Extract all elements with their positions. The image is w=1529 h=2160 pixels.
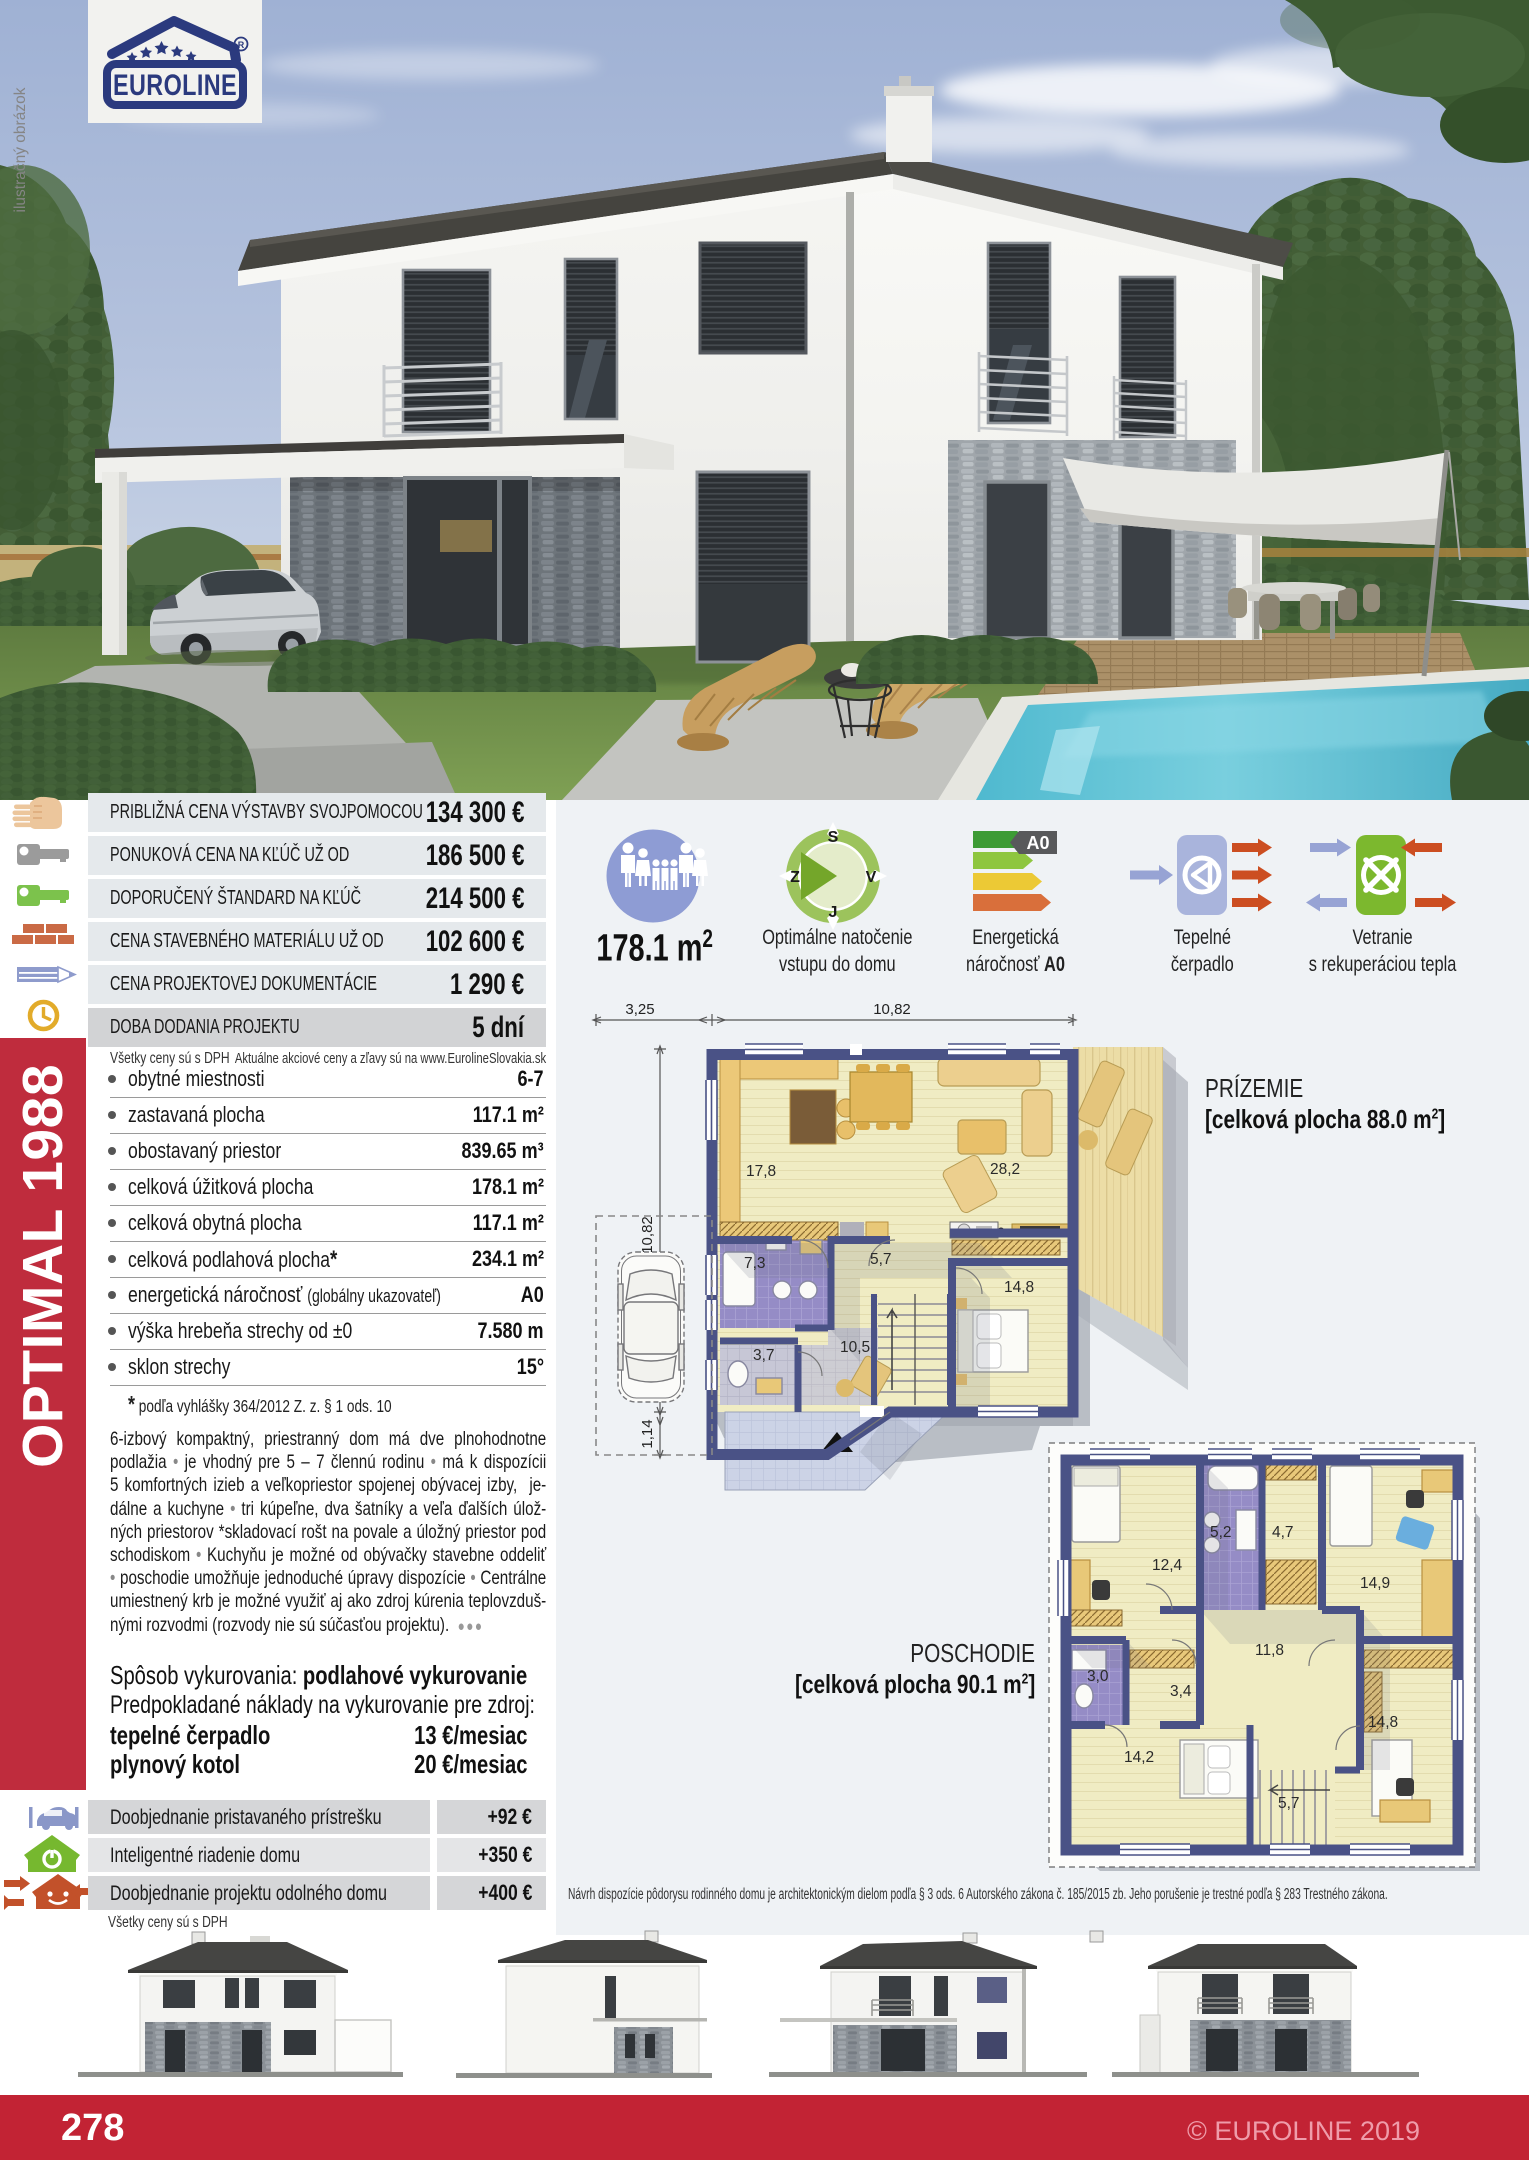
svg-text:J: J xyxy=(829,904,838,921)
svg-text:5,2: 5,2 xyxy=(1210,1524,1232,1541)
svg-text:10,5: 10,5 xyxy=(840,1339,870,1356)
svg-text:14,8: 14,8 xyxy=(1004,1279,1034,1296)
svg-text:3,4: 3,4 xyxy=(1170,1683,1192,1700)
svg-text:14,2: 14,2 xyxy=(1124,1749,1154,1766)
svg-text:V: V xyxy=(866,869,877,886)
svg-text:1,14: 1,14 xyxy=(639,1419,656,1448)
svg-text:4,7: 4,7 xyxy=(1272,1524,1294,1541)
svg-text:10,82: 10,82 xyxy=(873,1001,911,1018)
svg-text:R: R xyxy=(238,40,245,50)
svg-text:10,82: 10,82 xyxy=(639,1216,656,1254)
svg-text:11,8: 11,8 xyxy=(1255,1642,1284,1659)
svg-text:3,25: 3,25 xyxy=(625,1001,654,1018)
svg-text:5,7: 5,7 xyxy=(870,1251,892,1268)
svg-text:7,3: 7,3 xyxy=(744,1255,766,1272)
svg-text:S: S xyxy=(828,829,839,846)
svg-text:A0: A0 xyxy=(1026,833,1049,853)
svg-text:Z: Z xyxy=(790,869,800,886)
svg-text:17,8: 17,8 xyxy=(746,1163,776,1180)
svg-text:14,9: 14,9 xyxy=(1360,1575,1390,1592)
svg-text:28,2: 28,2 xyxy=(990,1161,1020,1178)
svg-text:14,8: 14,8 xyxy=(1368,1714,1398,1731)
svg-text:EUROLINE: EUROLINE xyxy=(113,68,237,101)
svg-text:5,7: 5,7 xyxy=(1278,1795,1300,1812)
svg-text:3,7: 3,7 xyxy=(753,1347,775,1364)
svg-text:12,4: 12,4 xyxy=(1152,1557,1183,1574)
svg-text:3,0: 3,0 xyxy=(1087,1668,1109,1685)
